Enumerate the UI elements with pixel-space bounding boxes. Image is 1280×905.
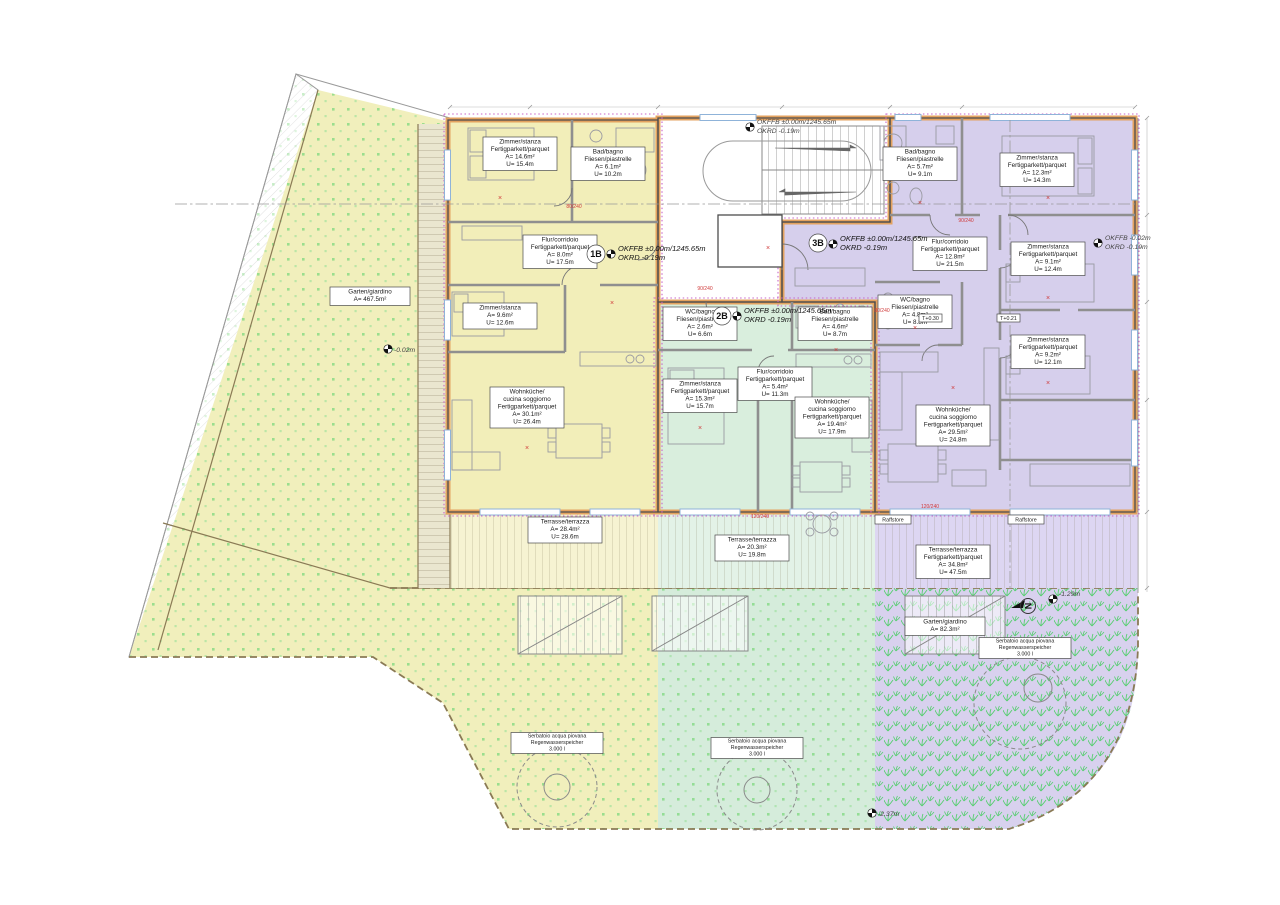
red-mark: × <box>698 425 702 432</box>
room-label-2b-flur: Flur/corridoio Fertigparkett/parquet A= … <box>738 367 812 401</box>
room-name: WC/bagno <box>900 297 930 304</box>
room-perimeter: U= 14.3m <box>1023 177 1050 184</box>
raffstore-tag: Raffstore <box>882 518 903 524</box>
garden-label-left: Garten/giardino A= 467.5m² <box>330 287 410 306</box>
room-name: Terrasse/terrazza <box>541 519 590 526</box>
red-mark: × <box>766 245 770 252</box>
room-floor: Fertigparkett/parquet <box>1019 344 1078 351</box>
red-mark: × <box>498 195 502 202</box>
room-label-1b-flur: Flur/corridoio Fertigparkett/parquet A= … <box>523 235 597 269</box>
apartment-id: 3B <box>812 238 824 248</box>
tank-line: Serbatoio acqua piovana <box>728 739 787 745</box>
red-mark: × <box>834 347 838 354</box>
garden-area: A= 82.3m² <box>930 626 959 633</box>
door-size-tag: 120/240 <box>921 504 939 510</box>
red-mark: × <box>918 200 922 207</box>
room-label-3b-zimmer3: Zimmer/stanza Fertigparkett/parquet A= 9… <box>1011 335 1085 369</box>
tank-line: Serbatoio acqua piovana <box>996 639 1055 645</box>
room-perimeter: U= 15.4m <box>506 161 533 168</box>
door-size-tag: 90/240 <box>697 286 713 292</box>
room-name: Zimmer/stanza <box>1016 155 1058 162</box>
room-name: Terrasse/terrazza <box>728 537 777 544</box>
room-label-3b-zimmer2: Zimmer/stanza Fertigparkett/parquet A= 9… <box>1011 242 1085 276</box>
room-perimeter: U= 19.8m <box>738 552 765 559</box>
room-label-1b-terrasse: Terrasse/terrazza A= 28.4m² U= 28.6m <box>528 517 602 543</box>
raffstore-tag: Raffstore <box>1015 518 1036 524</box>
room-label-1b-zimmer1: Zimmer/stanza Fertigparkett/parquet A= 1… <box>483 137 557 171</box>
room-name: Flur/corridoio <box>542 237 579 244</box>
room-area: A= 12.8m² <box>935 254 964 261</box>
room-name: Zimmer/stanza <box>679 381 721 388</box>
room-label-3b-wohnkueche: Wohnküche/ cucina soggiorno Fertigparket… <box>916 405 990 446</box>
tank-line: Regenwasserspeicher <box>731 745 784 751</box>
level-text: OKRD -0.19m <box>840 243 887 252</box>
room-name: Flur/corridoio <box>757 369 794 376</box>
room-floor: Fertigparkett/parquet <box>924 554 983 561</box>
tank-label-green: Serbatoio acqua piovana Regenwasserspeic… <box>711 738 803 759</box>
room-label-3b-bad: Bad/bagno Fliesen/piastrelle A= 5.7m² U=… <box>883 147 957 181</box>
level-text: OKRD -0.19m <box>757 128 800 135</box>
room-label-2b-zimmer: Zimmer/stanza Fertigparkett/parquet A= 1… <box>663 379 737 413</box>
red-mark: × <box>913 325 917 332</box>
threshold-tag: T+0.21 <box>1000 316 1017 322</box>
level-text: OKFFB ±0.00m/1245.65m <box>618 244 706 253</box>
north-label: N <box>1023 603 1033 610</box>
level-text: OKFFB ±0.00m/1245.65m <box>744 306 832 315</box>
tank-line: Serbatoio acqua piovana <box>528 734 587 740</box>
door-size-tag: 120/240 <box>751 514 769 520</box>
room-perimeter: U= 9.1m <box>908 171 932 178</box>
red-mark: × <box>951 385 955 392</box>
tank-line: 3.000 l <box>749 752 765 758</box>
room-name: Zimmer/stanza <box>499 139 541 146</box>
room-perimeter: U= 17.9m <box>818 429 845 436</box>
level-text: OKRD -0.19m <box>744 315 791 324</box>
red-mark: × <box>610 300 614 307</box>
room-perimeter: U= 21.5m <box>936 261 963 268</box>
room-area: A= 28.4m² <box>550 526 579 533</box>
room-label-1b-bad: Bad/bagno Fliesen/piastrelle A= 6.1m² U=… <box>571 147 645 181</box>
room-name: Wohnküche/ <box>510 389 545 396</box>
room-area: A= 5.4m² <box>762 384 788 391</box>
room-area: A= 30.1m² <box>512 411 541 418</box>
room-name: Wohnküche/ <box>936 407 971 414</box>
room-perimeter: U= 24.8m <box>939 437 966 444</box>
room-name: Bad/bagno <box>593 149 624 156</box>
level-marker-icon <box>384 345 392 353</box>
level-marker-icon <box>1049 595 1057 603</box>
room-floor: Fertigparkett/parquet <box>671 388 730 395</box>
red-mark: × <box>1046 195 1050 202</box>
room-perimeter: U= 11.3m <box>761 391 788 398</box>
level-marker-icon <box>868 809 876 817</box>
room-area: A= 14.6m² <box>505 154 534 161</box>
garden-area: A= 467.5m² <box>354 296 387 303</box>
room-area: A= 12.3m² <box>1022 170 1051 177</box>
room-area: A= 9.6m² <box>487 312 513 319</box>
room-perimeter: U= 28.6m <box>551 534 578 541</box>
room-floor: Fertigparkett/parquet <box>1008 162 1067 169</box>
room-name: Zimmer/stanza <box>479 305 521 312</box>
room-floor: Fertigparkett/parquet <box>921 246 980 253</box>
apartment-id: 1B <box>590 249 602 259</box>
room-perimeter: U= 17.5m <box>546 259 573 266</box>
level-text: OKRD -0.19m <box>1105 244 1148 251</box>
room-perimeter: U= 6.6m <box>688 331 712 338</box>
level-text: OKRD -0.19m <box>618 253 665 262</box>
room-name2: cucina soggiorno <box>929 414 977 421</box>
room-name: Bad/bagno <box>905 149 936 156</box>
level-text: -0.02m <box>394 347 415 354</box>
room-perimeter: U= 12.1m <box>1034 359 1061 366</box>
level-text: -1.29m <box>1059 591 1080 598</box>
room-name: Zimmer/stanza <box>1027 244 1069 251</box>
room-perimeter: U= 12.6m <box>486 320 513 327</box>
red-mark: × <box>525 445 529 452</box>
room-label-3b-zimmer1: Zimmer/stanza Fertigparkett/parquet A= 1… <box>1000 153 1074 187</box>
level-marker-icon <box>733 312 741 320</box>
red-mark: × <box>1046 380 1050 387</box>
floor-plan-page: Zimmer/stanza Fertigparkett/parquet A= 1… <box>0 0 1280 905</box>
tank-line: Regenwasserspeicher <box>531 740 584 746</box>
room-name: Zimmer/stanza <box>1027 337 1069 344</box>
floor-plan-canvas: Zimmer/stanza Fertigparkett/parquet A= 1… <box>0 0 1280 905</box>
room-floor: Fertigparkett/parquet <box>498 404 557 411</box>
room-name2: cucina soggiorno <box>808 406 856 413</box>
room-floor: Fliesen/piastrelle <box>891 304 939 311</box>
room-area: A= 9.1m² <box>1035 259 1061 266</box>
room-area: A= 2.6m² <box>687 324 713 331</box>
garden-name: Garten/giardino <box>923 619 967 626</box>
room-label-1b-zimmer2: Zimmer/stanza A= 9.6m² U= 12.6m <box>463 303 537 329</box>
room-perimeter: U= 12.4m <box>1034 266 1061 273</box>
garden-name: Garten/giardino <box>348 289 392 296</box>
room-floor: Fertigparkett/parquet <box>924 422 983 429</box>
room-name: Wohnküche/ <box>815 399 850 406</box>
tank-label-yellow: Serbatoio acqua piovana Regenwasserspeic… <box>511 733 603 754</box>
room-name2: cucina soggiorno <box>503 396 551 403</box>
room-area: A= 6.1m² <box>595 164 621 171</box>
room-area: A= 20.3m² <box>737 544 766 551</box>
threshold-tag: T+0.30 <box>922 316 939 322</box>
level-marker-garden-left: -0.02m <box>384 345 416 354</box>
tank-line: 3.000 l <box>549 747 565 753</box>
room-area: A= 15.3m² <box>685 396 714 403</box>
room-name: Flur/corridoio <box>932 239 969 246</box>
level-marker-garden-bottom: -2.37m <box>868 809 900 818</box>
room-name: Terrasse/terrazza <box>929 547 978 554</box>
garden-label-right: Garten/giardino A= 82.3m² <box>905 617 985 636</box>
room-name: WC/bagno <box>685 309 715 316</box>
room-floor: Fliesen/piastrelle <box>811 316 859 323</box>
level-text: OKFFB ±0.00m/1245.65m <box>840 234 928 243</box>
door-size-tag: 90/240 <box>958 218 974 224</box>
room-perimeter: U= 47.5m <box>939 569 966 576</box>
room-label-2b-terrasse: Terrasse/terrazza A= 20.3m² U= 19.8m <box>715 535 789 561</box>
level-marker-icon <box>607 250 615 258</box>
room-perimeter: U= 10.2m <box>594 171 621 178</box>
room-area: A= 4.6m² <box>822 324 848 331</box>
level-text: OKFFB -0.02m <box>1105 235 1151 242</box>
room-floor: Fertigparkett/parquet <box>531 244 590 251</box>
tank-line: Regenwasserspeicher <box>999 645 1052 651</box>
tank-label-purple: Serbatoio acqua piovana Regenwasserspeic… <box>979 638 1071 659</box>
door-size-tag: 80/240 <box>566 204 582 210</box>
room-perimeter: U= 15.7m <box>686 403 713 410</box>
tank-line: 3.000 l <box>1017 652 1033 658</box>
level-text: OKFFB ±0.00m/1245.65m <box>757 119 837 126</box>
room-floor: Fertigparkett/parquet <box>746 376 805 383</box>
level-marker-icon <box>746 123 754 131</box>
room-label-2b-wohnkueche: Wohnküche/ cucina soggiorno Fertigparket… <box>795 397 869 438</box>
room-floor: Fertigparkett/parquet <box>803 414 862 421</box>
red-mark: × <box>1046 295 1050 302</box>
room-floor: Fliesen/piastrelle <box>896 156 944 163</box>
level-text: -2.37m <box>878 811 899 818</box>
room-label-1b-wohnkueche: Wohnküche/ cucina soggiorno Fertigparket… <box>490 387 564 428</box>
room-perimeter: U= 26.4m <box>513 419 540 426</box>
room-area: A= 9.2m² <box>1035 352 1061 359</box>
room-floor: Fertigparkett/parquet <box>491 146 550 153</box>
room-floor: Fertigparkett/parquet <box>1019 251 1078 258</box>
room-area: A= 19.4m² <box>817 421 846 428</box>
level-marker-icon <box>829 240 837 248</box>
room-floor: Fliesen/piastrelle <box>584 156 632 163</box>
apartment-id: 2B <box>716 311 728 321</box>
room-area: A= 34.8m² <box>938 562 967 569</box>
room-perimeter: U= 8.7m <box>823 331 847 338</box>
room-area: A= 29.5m² <box>938 429 967 436</box>
room-label-3b-terrasse: Terrasse/terrazza Fertigparkett/parquet … <box>916 545 990 579</box>
room-area: A= 5.7m² <box>907 164 933 171</box>
door-size-tag: 80/240 <box>874 308 890 314</box>
level-marker-icon <box>1094 239 1102 247</box>
room-area: A= 8.0m² <box>547 252 573 259</box>
